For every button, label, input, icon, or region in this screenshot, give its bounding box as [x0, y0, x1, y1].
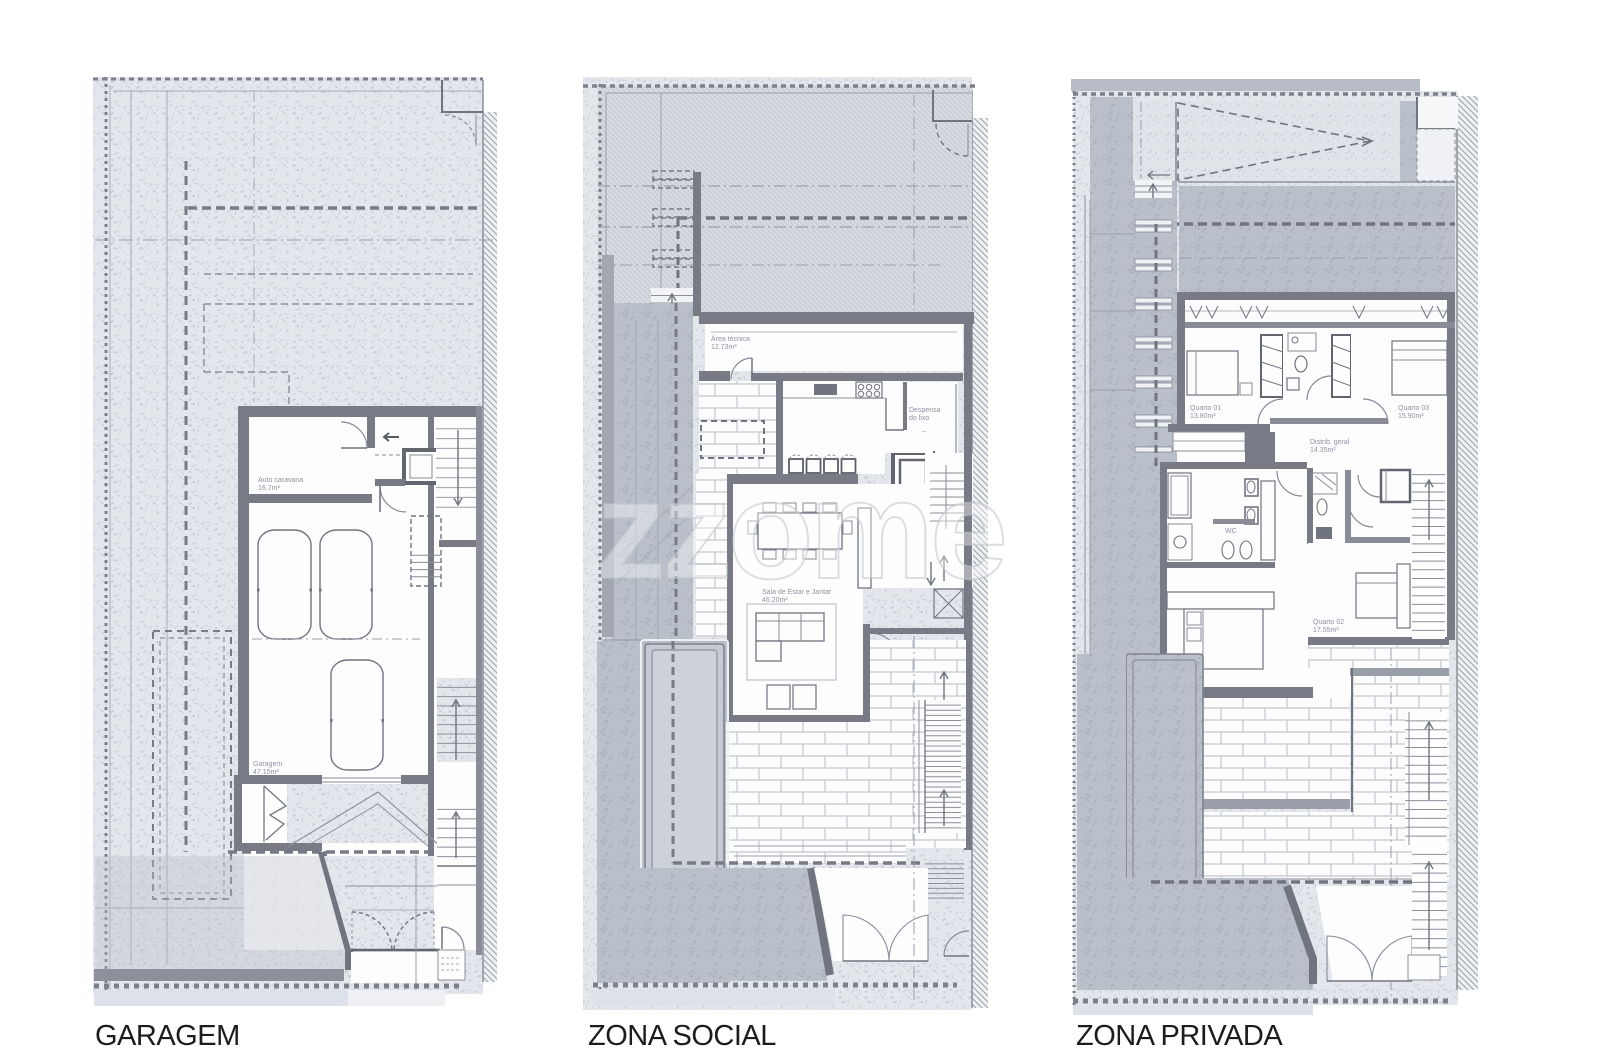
svg-text:47.15m²: 47.15m²: [253, 769, 279, 776]
svg-text:Garagem: Garagem: [253, 761, 282, 768]
svg-text:WC: WC: [1225, 528, 1237, 535]
svg-text:Quarto 01: Quarto 01: [1190, 405, 1221, 412]
svg-text:14.35m²: 14.35m²: [1310, 447, 1336, 454]
svg-text:12.73m²: 12.73m²: [711, 344, 737, 351]
svg-text:Despensa: Despensa: [909, 407, 941, 414]
svg-text:Auto caravana: Auto caravana: [258, 477, 303, 484]
svg-text:16.7m²: 16.7m²: [258, 485, 280, 492]
svg-text:Distrib. geral: Distrib. geral: [1310, 439, 1350, 446]
svg-text:zzome: zzome: [596, 451, 1004, 608]
svg-text:Quarto 02: Quarto 02: [1313, 619, 1344, 626]
svg-text:do lixo: do lixo: [909, 415, 929, 422]
svg-text:ZONA SOCIAL: ZONA SOCIAL: [588, 1020, 776, 1052]
svg-text:Área técnica: Área técnica: [711, 334, 750, 343]
svg-text:ZONA PRIVADA: ZONA PRIVADA: [1076, 1020, 1283, 1052]
svg-text:13.80m²: 13.80m²: [1190, 413, 1216, 420]
svg-text:15.90m²: 15.90m²: [1398, 413, 1424, 420]
svg-text:17.55m²: 17.55m²: [1313, 627, 1339, 634]
svg-text:Quarto 03: Quarto 03: [1398, 405, 1429, 412]
svg-text:GARAGEM: GARAGEM: [95, 1020, 240, 1052]
